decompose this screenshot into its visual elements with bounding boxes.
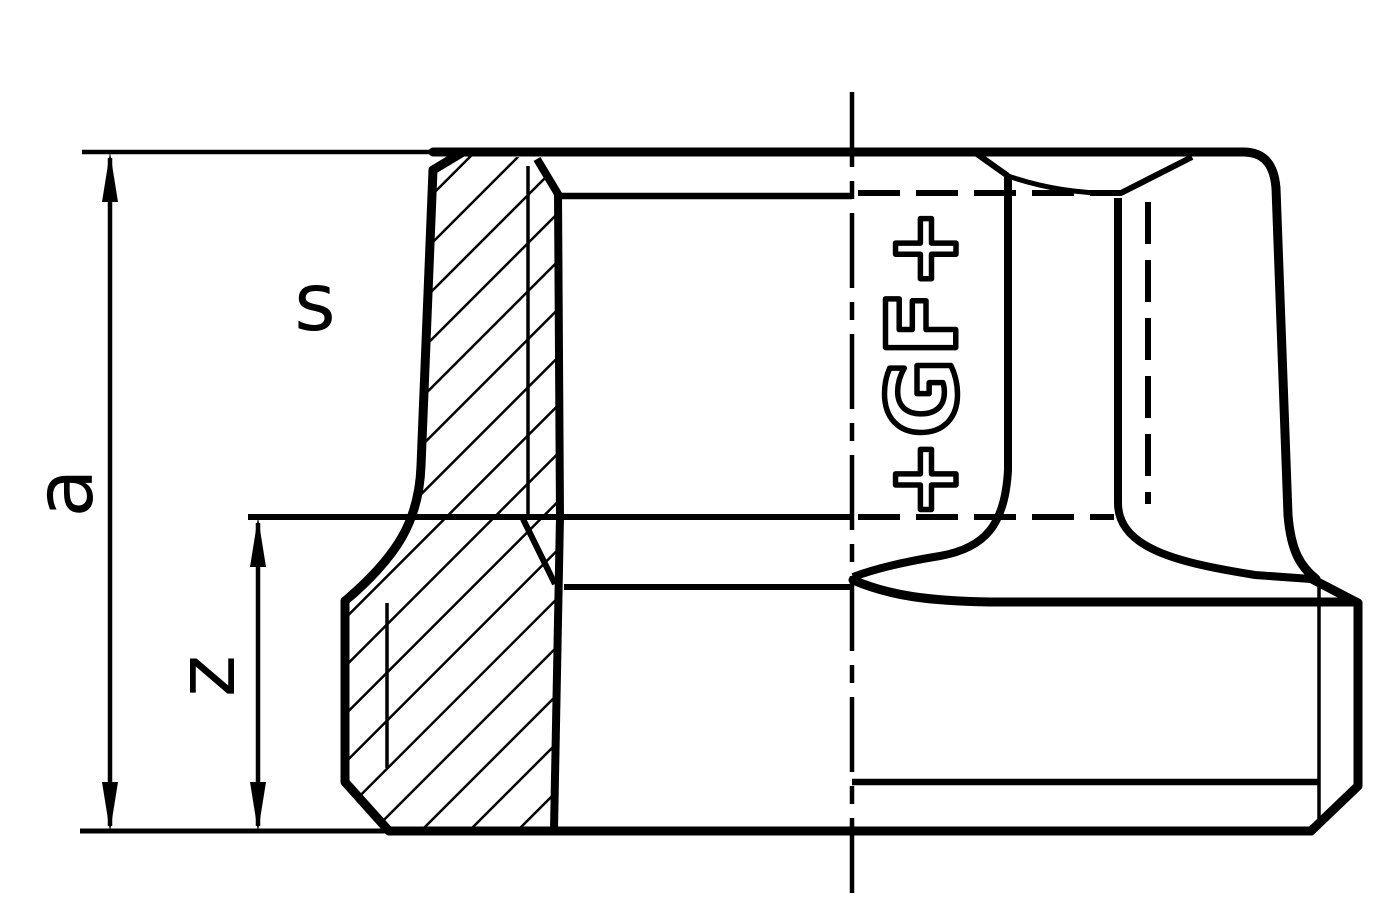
pipe-fitting-technical-drawing: a z s +GF+ <box>0 0 1400 900</box>
dimension-label-a: a <box>18 468 111 517</box>
drawing-canvas: a z s +GF+ <box>0 0 1400 900</box>
dimension-label-z: z <box>160 655 253 697</box>
drawing-background <box>0 0 1400 900</box>
gf-logo: +GF+ <box>867 206 979 519</box>
dimension-label-s: s <box>294 256 336 349</box>
